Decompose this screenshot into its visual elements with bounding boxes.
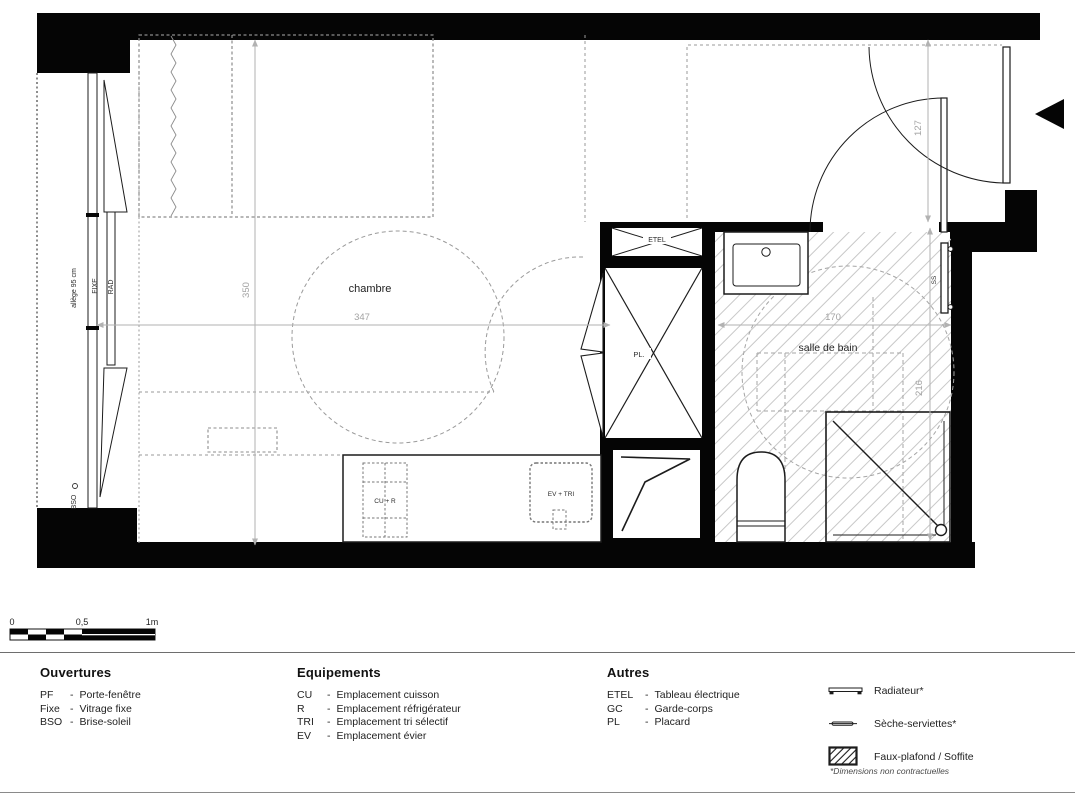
legend-abbr: GC — [607, 703, 643, 717]
dim-350: 350 — [241, 282, 252, 298]
rad-label: RAD — [108, 280, 115, 295]
legend-equipements: Equipements CU-Emplacement cuisson R-Emp… — [297, 665, 461, 743]
legend-label: Emplacement cuisson — [337, 689, 440, 703]
legend-dash: - — [68, 703, 80, 717]
legend-dash: - — [325, 689, 337, 703]
legend-label: Vitrage fixe — [80, 703, 132, 717]
cu-r-label: CU + R — [374, 498, 396, 505]
bso-label: BSO — [71, 494, 78, 509]
toilet — [737, 452, 785, 542]
wall-entry-stub — [1005, 190, 1037, 224]
legend-abbr: Fixe — [40, 703, 68, 717]
legend-item: PF-Porte-fenêtre — [40, 689, 141, 703]
legend-item: CU-Emplacement cuisson — [297, 689, 461, 703]
door-frame-bottom — [1005, 183, 1040, 190]
legend-item: BSO-Brise-soleil — [40, 716, 141, 730]
legend-label: Brise-soleil — [80, 716, 131, 730]
etel-label: ETEL — [648, 237, 666, 244]
legend-label: Emplacement tri sélectif — [337, 716, 448, 730]
scale-cell — [10, 629, 28, 635]
duct-niche — [613, 450, 700, 538]
legend-symbol-label: Sèche-serviettes* — [874, 718, 956, 730]
chambre-label: chambre — [349, 283, 392, 295]
floor-plan-svg: allège 95 cm FIXE RAD BSO CU + R EV + TR… — [0, 0, 1075, 652]
bathroom-door-swing — [810, 98, 944, 232]
allege-label: allège 95 cm — [71, 268, 78, 308]
legend-label: Emplacement évier — [337, 730, 427, 744]
bso-marker-icon — [73, 484, 78, 489]
legend-label: Tableau électrique — [655, 689, 740, 703]
legend-ouvertures: Ouvertures PF-Porte-fenêtre Fixe-Vitrage… — [40, 665, 141, 730]
wall-bathroom-top — [715, 222, 823, 232]
window-transom-1 — [86, 213, 99, 217]
wall-bottom-left-slab — [37, 508, 137, 568]
legend-dash: - — [643, 716, 655, 730]
placard-door-triangle-bottom — [581, 353, 603, 437]
legend-item: TRI-Emplacement tri sélectif — [297, 716, 461, 730]
window-transom-2 — [86, 326, 99, 330]
bed-zigzag — [171, 36, 176, 216]
legend-dash: - — [643, 689, 655, 703]
legend-dash: - — [643, 703, 655, 717]
window-opening-triangle-bottom — [100, 368, 127, 497]
wall-right — [951, 232, 972, 568]
legend-dash: - — [325, 716, 337, 730]
towel-dryer-mount-top — [948, 247, 953, 252]
towel-dryer-icon — [828, 720, 868, 728]
scale-cell — [28, 635, 46, 641]
fixe-label: FIXE — [92, 278, 99, 294]
scale-bar: 0 0,5 1m — [9, 617, 158, 640]
legend-symbol-label: Radiateur* — [874, 685, 924, 697]
legend-item: PL-Placard — [607, 716, 740, 730]
entry — [869, 47, 1064, 183]
window-opening-triangle-top — [104, 80, 127, 212]
bathroom-door-leaf — [941, 98, 947, 232]
washbasin-counter — [724, 232, 808, 294]
towel-dryer-mount-bottom — [948, 305, 953, 310]
legend-item: EV-Emplacement évier — [297, 730, 461, 744]
shower-drain — [936, 525, 947, 536]
legend-abbr: CU — [297, 689, 325, 703]
scale-tick-0: 0 — [9, 617, 14, 627]
dim-216: 216 — [914, 380, 925, 396]
legend-abbr: EV — [297, 730, 325, 744]
ss-label: SS — [931, 275, 938, 284]
wall-bottom — [137, 542, 975, 568]
dim-127: 127 — [913, 120, 924, 136]
floor-plan: allège 95 cm FIXE RAD BSO CU + R EV + TR… — [0, 0, 1075, 657]
legend-label: Emplacement réfrigérateur — [337, 703, 461, 717]
legend-dash: - — [68, 716, 80, 730]
legend-title-ouvertures: Ouvertures — [40, 665, 141, 680]
entry-door-leaf — [1003, 47, 1010, 183]
legend-symbol-row: Sèche-serviettes* — [828, 714, 974, 734]
window-band: allège 95 cm FIXE RAD BSO — [37, 73, 139, 545]
ev-tri-label: EV + TRI — [548, 491, 575, 498]
legend-abbr: BSO — [40, 716, 68, 730]
placard-door-triangle-top — [581, 273, 603, 352]
entry-door-swing — [869, 47, 1003, 183]
entry-arrow-icon — [1035, 99, 1064, 129]
legend-title-autres: Autres — [607, 665, 740, 680]
legend-dash: - — [325, 703, 337, 717]
scale-cell — [64, 635, 82, 641]
legend-abbr: TRI — [297, 716, 325, 730]
desk-outline — [208, 428, 277, 452]
legend: Ouvertures PF-Porte-fenêtre Fixe-Vitrage… — [0, 652, 1075, 793]
legend-abbr: PF — [40, 689, 68, 703]
dim-347: 347 — [354, 312, 370, 323]
legend-dash: - — [68, 689, 80, 703]
legend-item: GC-Garde-corps — [607, 703, 740, 717]
kitchen: CU + R EV + TRI — [343, 455, 601, 542]
wall-top-left-block — [37, 13, 130, 73]
pl-label: PL. — [633, 350, 644, 359]
legend-dash: - — [325, 730, 337, 744]
legend-label: Garde-corps — [655, 703, 713, 717]
legend-symbol-label: Faux-plafond / Soffite — [874, 751, 974, 763]
legend-abbr: ETEL — [607, 689, 643, 703]
placard-swing-arc — [485, 257, 583, 392]
scale-tick-1m: 1m — [146, 617, 159, 627]
door-frame-top — [1005, 40, 1040, 47]
legend-item: ETEL-Tableau électrique — [607, 689, 740, 703]
scale-midline — [82, 634, 155, 635]
salle-de-bain-label: salle de bain — [799, 342, 858, 354]
legend-label: Placard — [655, 716, 691, 730]
turning-circle-chambre — [292, 231, 504, 443]
furniture-dashed — [139, 35, 433, 452]
legend-abbr: R — [297, 703, 325, 717]
legend-item: R-Emplacement réfrigérateur — [297, 703, 461, 717]
legend-autres: Autres ETEL-Tableau électrique GC-Garde-… — [607, 665, 740, 730]
false-ceiling-icon — [828, 746, 868, 768]
wall-top — [130, 13, 1010, 40]
dim-170: 170 — [825, 312, 841, 323]
legend-symbol-row: Faux-plafond / Soffite — [828, 747, 974, 767]
legend-abbr: PL — [607, 716, 643, 730]
wall-top-right-block — [1005, 13, 1040, 40]
scale-cell — [46, 629, 64, 635]
legend-item: Fixe-Vitrage fixe — [40, 703, 141, 717]
entry-zone-outline — [687, 45, 1002, 218]
legend-label: Porte-fenêtre — [80, 689, 141, 703]
radiator-icon — [828, 686, 868, 696]
legend-title-equipements: Equipements — [297, 665, 461, 680]
legend-footnote: *Dimensions non contractuelles — [830, 766, 949, 776]
bed-outline — [139, 35, 433, 217]
scale-tick-05: 0,5 — [76, 617, 89, 627]
legend-symbol-row: Radiateur* — [828, 681, 974, 701]
towel-dryer — [941, 243, 948, 313]
